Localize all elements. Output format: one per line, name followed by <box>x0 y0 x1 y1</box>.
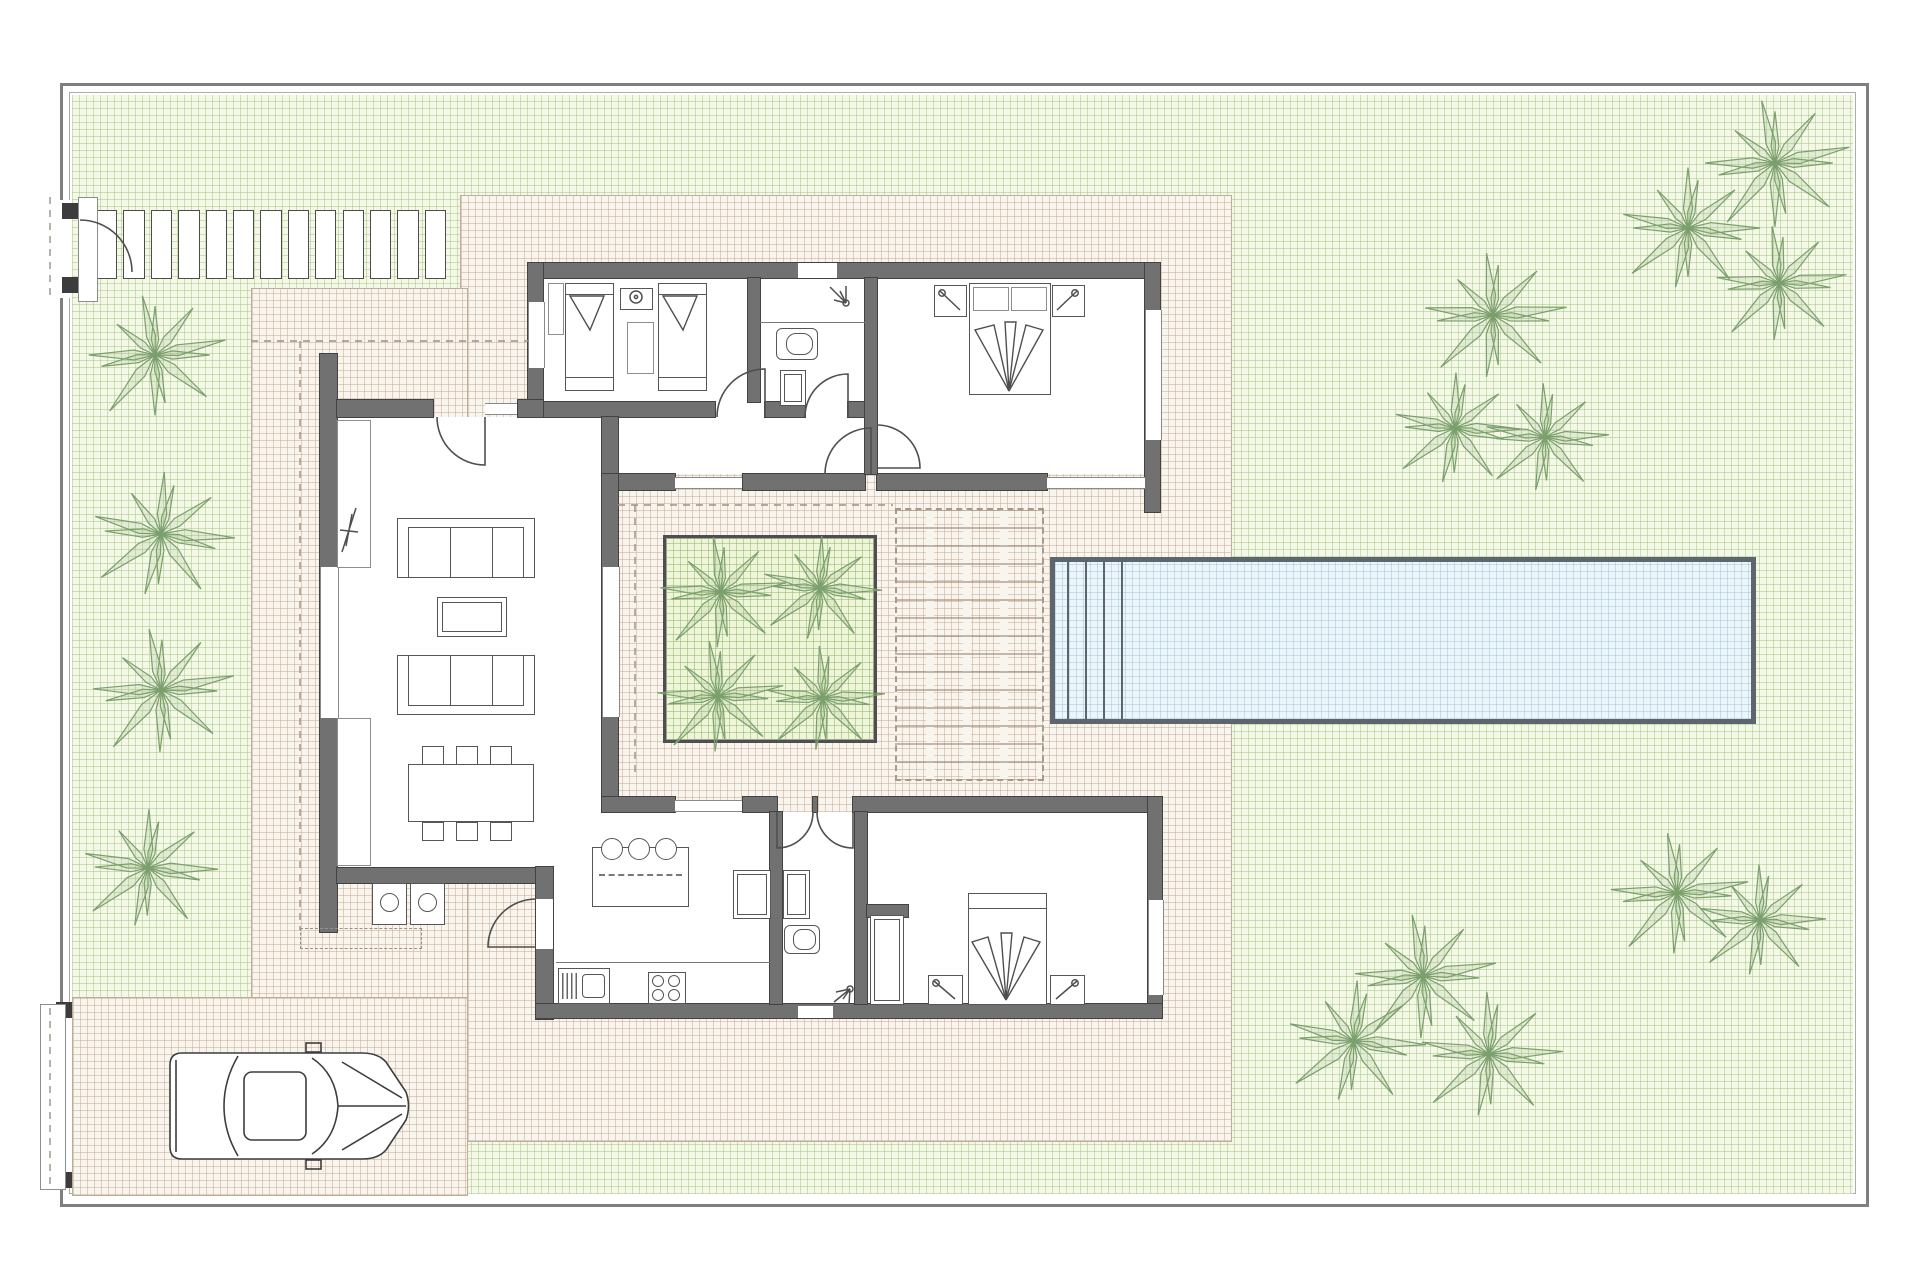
wall-living-south <box>337 868 536 883</box>
island-stool <box>628 838 650 860</box>
bedroom1-window-east <box>1148 900 1164 995</box>
wall-bath2-bed2 <box>865 278 877 474</box>
sideboard <box>337 718 371 866</box>
wall-bottomwing-south <box>536 1004 1162 1018</box>
gate-leaf <box>78 197 98 302</box>
pool-step-line <box>1121 562 1123 719</box>
dining-chair <box>422 746 444 765</box>
wall-bottomwing-north-d <box>853 797 1162 812</box>
wall-bottomwing-north-a <box>602 797 675 812</box>
walkway-slat <box>233 210 254 279</box>
driveway-gate-leaf <box>40 1004 66 1190</box>
courtyard-planter <box>663 535 877 743</box>
walkway-slat <box>425 210 446 279</box>
bedroom2-window-east <box>1145 310 1162 440</box>
shower-screen-line <box>760 322 865 323</box>
island-stool <box>655 838 677 860</box>
bidet-sink <box>780 370 806 406</box>
wall-bath1-west <box>770 812 782 1004</box>
vanity-cabinet <box>783 870 810 919</box>
kitchen-west-door-opening <box>536 899 553 949</box>
nightstand <box>1050 975 1085 1005</box>
walkway-slats <box>96 210 452 277</box>
living-window-west <box>320 567 339 718</box>
walkway-slat <box>288 210 309 279</box>
kitchen-counter-edge <box>556 962 770 963</box>
wall-bath1-east <box>855 812 867 1004</box>
bathroom2-window-north <box>798 263 837 278</box>
wall-living-north <box>337 400 433 417</box>
nightstand <box>934 285 967 317</box>
kitchen-window-north <box>675 800 743 812</box>
washer-drum <box>418 893 437 912</box>
nightstand <box>928 975 963 1005</box>
swimming-pool <box>1050 557 1756 724</box>
timber-deck-area <box>895 508 1044 781</box>
nightstand <box>1052 285 1085 317</box>
pool-step-line <box>1103 562 1105 719</box>
burner <box>652 975 664 987</box>
entry-window <box>485 403 518 415</box>
wall-bottomwing-north-c <box>813 797 817 812</box>
nightstand <box>620 288 653 310</box>
pool-step-line <box>1067 562 1069 719</box>
wall-living-north-b <box>518 400 543 417</box>
walkway-slat <box>206 210 227 279</box>
tv-sideboard <box>337 420 371 568</box>
walkway-slat <box>123 210 144 279</box>
walkway-slat <box>260 210 281 279</box>
wall-corridor-a <box>543 402 715 417</box>
pool-step-line <box>1085 562 1087 719</box>
sofa-bottom <box>397 655 535 715</box>
burner <box>668 975 680 987</box>
bedside-runner <box>627 322 654 374</box>
burner <box>668 989 680 1001</box>
window-courtyard-north <box>675 477 743 489</box>
dining-chair <box>490 746 512 765</box>
toilet <box>784 925 820 954</box>
gate-post-top <box>62 203 78 219</box>
washer-drum <box>380 893 399 912</box>
south-wall-notch <box>798 1006 833 1018</box>
wardrobe <box>548 283 564 335</box>
wall-courtyard-north-b <box>743 474 865 490</box>
walkway-slat <box>343 210 364 279</box>
dining-chair <box>456 822 478 841</box>
bed-double <box>969 283 1051 395</box>
wall-topwing-north <box>528 263 1160 278</box>
wall-bed3-bath2 <box>748 278 760 402</box>
dining-chair <box>456 746 478 765</box>
dining-chair <box>422 822 444 841</box>
floor-plan-canvas <box>0 0 1920 1280</box>
bed-double <box>968 893 1047 1005</box>
gate-post-bottom <box>62 277 78 293</box>
fridge <box>733 870 771 919</box>
living-window-east <box>602 567 620 717</box>
wall-corridor-c <box>848 402 865 417</box>
dining-table <box>408 764 534 822</box>
walkway-slat <box>96 210 117 279</box>
burner <box>652 989 664 1001</box>
bedroom3-window-west <box>528 302 545 368</box>
wall-courtyard-nw-connector <box>602 417 618 474</box>
dining-chair <box>490 822 512 841</box>
walkway-slat <box>315 210 336 279</box>
walkway-slat <box>397 210 418 279</box>
toilet <box>776 328 818 360</box>
walkway-slat <box>178 210 199 279</box>
wall-bottomwing-north-b <box>743 797 777 812</box>
walkway-slat <box>370 210 391 279</box>
walkway-slat <box>151 210 172 279</box>
sofa-top <box>397 518 535 578</box>
coffee-table <box>437 597 507 637</box>
kitchen-sink <box>558 968 610 1004</box>
bed-single <box>565 283 614 391</box>
driveway <box>72 997 468 1196</box>
island-stool <box>601 838 623 860</box>
bedroom2-window-south <box>1047 477 1145 489</box>
closet <box>870 915 904 1005</box>
bed-single <box>658 283 707 391</box>
wall-courtyard-north-c <box>877 474 1047 490</box>
laundry-counter-outline <box>300 928 422 949</box>
